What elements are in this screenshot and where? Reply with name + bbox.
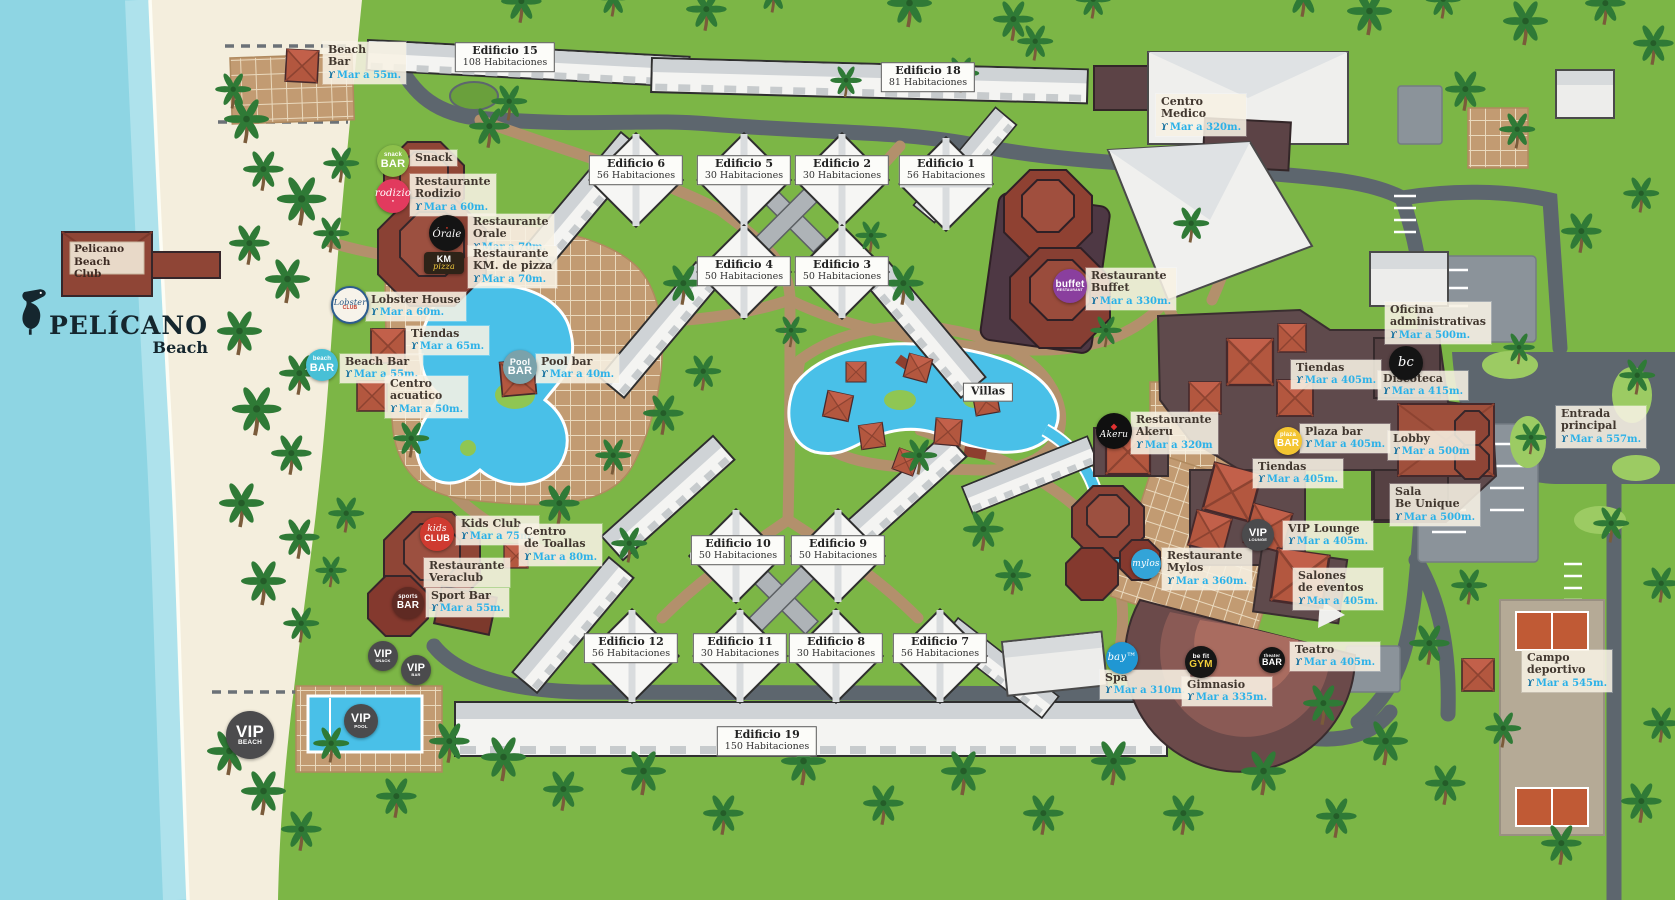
edificio-19-name: Edificio 19 xyxy=(725,729,809,742)
label-restaurante-rodizio[interactable]: Restaurante RodizioϒMar a 60m. xyxy=(410,174,496,216)
edificio-3-rooms: 50 Habitaciones xyxy=(803,272,881,283)
vip-pool-badge-text: VIP xyxy=(351,713,371,724)
label-tiendas-norte[interactable]: TiendasϒMar a 405m. xyxy=(1291,360,1381,389)
vip-lounge-name: VIP Lounge xyxy=(1288,523,1368,535)
label-edificio-12[interactable]: Edificio 1256 Habitaciones xyxy=(584,633,678,663)
label-snack[interactable]: Snack xyxy=(410,150,457,166)
restaurante-akeru-name: Restaurante Akeru xyxy=(1136,414,1213,439)
edificio-11-name: Edificio 11 xyxy=(701,636,779,649)
tiendas-sur-distance-line: ϒMar a 405m. xyxy=(1258,474,1338,486)
lobby-name: Lobby xyxy=(1393,433,1470,445)
label-edificio-7[interactable]: Edificio 756 Habitaciones xyxy=(893,633,987,663)
edificio-4-name: Edificio 4 xyxy=(705,259,783,272)
label-edificio-19[interactable]: Edificio 19150 Habitaciones xyxy=(717,726,817,756)
centro-medico-distance-line: ϒMar a 320m. xyxy=(1161,122,1241,134)
edificio-19-rooms: 150 Habitaciones xyxy=(725,742,809,753)
edificio-2-rooms: 30 Habitaciones xyxy=(803,171,881,182)
plaza-bar-badge-text: BAR xyxy=(1277,439,1299,449)
label-discoteca[interactable]: DiscotecaϒMar a 415m. xyxy=(1378,371,1468,400)
edificio-5-rooms: 30 Habitaciones xyxy=(705,171,783,182)
sea-distance-icon: ϒ xyxy=(1305,440,1312,450)
edificio-9-rooms: 50 Habitaciones xyxy=(799,551,877,562)
centro-acuatico-distance-line: ϒMar a 50m. xyxy=(390,404,463,416)
orale-badge-text: Órale xyxy=(432,230,461,240)
label-edificio-3[interactable]: Edificio 350 Habitaciones xyxy=(795,256,889,286)
snack-bar-badge-text: BAR xyxy=(381,159,405,169)
restaurante-rodizio-name: Restaurante Rodizio xyxy=(415,176,491,201)
edificio-6-rooms: 56 Habitaciones xyxy=(597,171,675,182)
label-entrada-principal[interactable]: Entrada principalϒMar a 557m. xyxy=(1556,406,1646,448)
centro-de-toallas-distance: Mar a 80m. xyxy=(533,552,597,563)
label-teatro[interactable]: TeatroϒMar a 405m. xyxy=(1290,642,1380,671)
vip-lounge-distance: Mar a 405m. xyxy=(1297,536,1368,547)
tiendas-norte-distance-line: ϒMar a 405m. xyxy=(1296,375,1376,387)
sports-bar-badge-text: BAR xyxy=(397,601,419,611)
akeru-badge-text: Akeru xyxy=(1100,431,1128,440)
centro-acuatico-name: Centro acuatico xyxy=(390,378,463,403)
orale-badge[interactable]: ●Órale xyxy=(429,215,465,251)
plaza-bar-distance-line: ϒMar a 405m. xyxy=(1305,439,1385,451)
sea-distance-icon: ϒ xyxy=(431,604,438,614)
vip-beach-badge-text: BEACH xyxy=(238,740,262,746)
snack-name: Snack xyxy=(415,152,452,164)
tiendas-sur-name: Tiendas xyxy=(1258,461,1338,473)
beach-club-sign-text: Pelicano Beach Club xyxy=(74,243,140,281)
salones-de-eventos-distance: Mar a 405m. xyxy=(1307,596,1378,607)
restaurante-km-pizza-distance-line: ϒMar a 70m. xyxy=(473,274,552,286)
sea-distance-icon: ϒ xyxy=(1187,693,1194,703)
edificio-18-name: Edificio 18 xyxy=(889,65,967,78)
spa-name: Spa xyxy=(1105,672,1185,684)
gimnasio-distance: Mar a 335m. xyxy=(1196,692,1267,703)
sala-be-unique-name: Sala Be Unique xyxy=(1395,486,1475,511)
spa-distance: Mar a 310m. xyxy=(1114,685,1185,696)
label-plaza-bar[interactable]: Plaza barϒMar a 405m. xyxy=(1300,424,1390,453)
pelican-icon xyxy=(18,286,49,338)
label-lobby[interactable]: LobbyϒMar a 500m xyxy=(1388,431,1475,460)
tiendas-oeste-distance-line: ϒMar a 65m. xyxy=(411,341,484,353)
tiendas-sur-distance: Mar a 405m. xyxy=(1267,474,1338,485)
label-restaurante-akeru[interactable]: Restaurante AkeruϒMar a 320m xyxy=(1131,412,1218,454)
pool-bar-badge[interactable]: PoolBAR xyxy=(503,350,537,384)
restaurante-buffet-distance-line: ϒMar a 330m. xyxy=(1091,296,1171,308)
label-restaurante-mylos[interactable]: Restaurante MylosϒMar a 360m. xyxy=(1162,548,1252,590)
sport-bar-distance: Mar a 55m. xyxy=(440,603,504,614)
centro-de-toallas-name: Centro de Toallas xyxy=(524,526,597,551)
sea-distance-icon: ϒ xyxy=(1161,123,1168,133)
lobster-house-distance-line: ϒMar a 60m. xyxy=(371,307,461,319)
sea-distance-icon: ϒ xyxy=(1527,679,1534,689)
sea-distance-icon: ϒ xyxy=(1136,441,1143,451)
restaurante-orale-name: Restaurante Orale xyxy=(473,216,549,241)
edificio-18-rooms: 81 Habitaciones xyxy=(889,78,967,89)
oficina-administrativas-distance-line: ϒMar a 500m. xyxy=(1390,330,1486,342)
edificio-15-rooms: 108 Habitaciones xyxy=(463,58,547,69)
edificio-9-name: Edificio 9 xyxy=(799,538,877,551)
sea-distance-icon: ϒ xyxy=(328,71,335,81)
km-pizza-badge[interactable]: KMpizza xyxy=(424,252,464,274)
sport-bar-name: Sport Bar xyxy=(431,590,504,602)
label-tiendas-oeste[interactable]: TiendasϒMar a 65m. xyxy=(406,326,489,355)
restaurante-km-pizza-name: Restaurante KM. de pizza xyxy=(473,248,552,273)
beach-bar-badge[interactable]: beachBAR xyxy=(306,349,338,381)
edificio-10-name: Edificio 10 xyxy=(699,538,777,551)
vip-snack-badge[interactable]: VIPSNACK xyxy=(368,641,398,671)
vip-beach-badge-text: VIP xyxy=(236,724,264,740)
entrada-principal-distance: Mar a 557m. xyxy=(1570,434,1641,445)
restaurante-rodizio-distance: Mar a 60m. xyxy=(424,202,488,213)
edificio-3-name: Edificio 3 xyxy=(803,259,881,272)
edificio-2-name: Edificio 2 xyxy=(803,158,881,171)
campo-deportivo-distance: Mar a 545m. xyxy=(1536,678,1607,689)
edificio-4-rooms: 50 Habitaciones xyxy=(705,272,783,283)
label-sala-be-unique[interactable]: Sala Be UniqueϒMar a 500m. xyxy=(1390,484,1480,526)
label-edificio-8[interactable]: Edificio 830 Habitaciones xyxy=(789,633,883,663)
label-edificio-10[interactable]: Edificio 1050 Habitaciones xyxy=(691,535,785,565)
sport-bar-distance-line: ϒMar a 55m. xyxy=(431,603,504,615)
bc-badge-text: bc xyxy=(1398,357,1414,369)
logo-subtitle: Beach xyxy=(86,340,208,356)
restaurante-rodizio-distance-line: ϒMar a 60m. xyxy=(415,202,491,214)
plaza-bar-name: Plaza bar xyxy=(1305,426,1385,438)
restaurante-mylos-distance-line: ϒMar a 360m. xyxy=(1167,576,1247,588)
label-edificio-18[interactable]: Edificio 1881 Habitaciones xyxy=(881,62,975,92)
label-villas[interactable]: Villas xyxy=(963,383,1013,402)
label-centro-medico[interactable]: Centro MedicoϒMar a 320m. xyxy=(1156,94,1246,136)
label-edificio-1[interactable]: Edificio 156 Habitaciones xyxy=(899,155,993,185)
beach-bar-north-distance-line: ϒMar a 55m. xyxy=(328,70,401,82)
label-restaurante-buffet[interactable]: Restaurante BuffetϒMar a 330m. xyxy=(1086,268,1176,310)
lobby-distance: Mar a 500m xyxy=(1402,446,1470,457)
theater-bar-badge[interactable]: theaterBAR xyxy=(1259,647,1285,673)
sea-distance-icon: ϒ xyxy=(1258,475,1265,485)
edificio-15-name: Edificio 15 xyxy=(463,45,547,58)
resort-map: Edificio 15108 HabitacionesEdificio 1881… xyxy=(0,0,1675,900)
restaurante-mylos-name: Restaurante Mylos xyxy=(1167,550,1247,575)
label-edificio-6[interactable]: Edificio 656 Habitaciones xyxy=(589,155,683,185)
gimnasio-distance-line: ϒMar a 335m. xyxy=(1187,692,1267,704)
label-edificio-2[interactable]: Edificio 230 Habitaciones xyxy=(795,155,889,185)
sea-distance-icon: ϒ xyxy=(1561,435,1568,445)
beach-bar-sur-name: Beach Bar xyxy=(345,356,418,368)
sea-distance-icon: ϒ xyxy=(371,308,378,318)
kids-club-badge[interactable]: kidsCLUB xyxy=(420,517,454,551)
sea-distance-icon: ϒ xyxy=(390,405,397,415)
teatro-distance: Mar a 405m. xyxy=(1304,657,1375,668)
restaurante-mylos-distance: Mar a 360m. xyxy=(1176,576,1247,587)
sea-distance-icon: ϒ xyxy=(1091,297,1098,307)
sea-distance-icon: ϒ xyxy=(1298,597,1305,607)
edificio-10-rooms: 50 Habitaciones xyxy=(699,551,777,562)
sea-distance-icon: ϒ xyxy=(1288,537,1295,547)
edificio-12-rooms: 56 Habitaciones xyxy=(592,649,670,660)
sea-distance-icon: ϒ xyxy=(411,342,418,352)
edificio-1-name: Edificio 1 xyxy=(907,158,985,171)
tiendas-oeste-distance: Mar a 65m. xyxy=(420,341,484,352)
edificio-8-name: Edificio 8 xyxy=(797,636,875,649)
beach-bar-north-name: Beach Bar xyxy=(328,44,401,69)
sea-distance-icon: ϒ xyxy=(524,553,531,563)
label-tiendas-sur[interactable]: TiendasϒMar a 405m. xyxy=(1253,459,1343,488)
entrada-principal-distance-line: ϒMar a 557m. xyxy=(1561,434,1641,446)
lobster-house-name: Lobster House xyxy=(371,294,461,306)
sala-be-unique-distance-line: ϒMar a 500m. xyxy=(1395,512,1475,524)
rodizio-badge-text: ● xyxy=(392,199,395,203)
pool-bar-name: Pool bar xyxy=(541,356,614,368)
lobster-club-badge-text: CLUB xyxy=(343,306,358,311)
bay-badge[interactable]: bay™ xyxy=(1106,642,1138,674)
edificio-5-name: Edificio 5 xyxy=(705,158,783,171)
discoteca-distance-line: ϒMar a 415m. xyxy=(1383,386,1463,398)
tiendas-norte-name: Tiendas xyxy=(1296,362,1376,374)
centro-medico-name: Centro Medico xyxy=(1161,96,1241,121)
villas-name: Villas xyxy=(971,386,1005,399)
edificio-6-name: Edificio 6 xyxy=(597,158,675,171)
sea-distance-icon: ϒ xyxy=(1383,387,1390,397)
label-edificio-9[interactable]: Edificio 950 Habitaciones xyxy=(791,535,885,565)
label-spa[interactable]: SpaϒMar a 310m. xyxy=(1100,670,1190,699)
sea-distance-icon: ϒ xyxy=(473,275,480,285)
vip-bar-badge-text: BAR xyxy=(411,673,420,677)
tiendas-norte-distance: Mar a 405m. xyxy=(1305,375,1376,386)
vip-pool-badge-text: POOL xyxy=(354,725,368,729)
pool-bar-badge-text: BAR xyxy=(508,366,532,376)
label-beach-bar-north[interactable]: Beach BarϒMar a 55m. xyxy=(323,42,406,84)
label-centro-acuatico[interactable]: Centro acuaticoϒMar a 50m. xyxy=(385,376,468,418)
label-pool-bar[interactable]: Pool barϒMar a 40m. xyxy=(536,354,619,383)
label-vip-lounge[interactable]: VIP LoungeϒMar a 405m. xyxy=(1283,521,1373,550)
discoteca-distance: Mar a 415m. xyxy=(1392,386,1463,397)
pool-bar-distance-line: ϒMar a 40m. xyxy=(541,369,614,381)
vip-lounge-badge-text: LOUNGE xyxy=(1249,538,1267,542)
spa-distance-line: ϒMar a 310m. xyxy=(1105,685,1185,697)
mylos-badge-text: mylos xyxy=(1132,560,1160,569)
vip-bar-badge[interactable]: VIPBAR xyxy=(401,655,431,685)
label-sport-bar[interactable]: Sport BarϒMar a 55m. xyxy=(426,588,509,617)
kids-club-badge-text: CLUB xyxy=(424,534,450,543)
restaurante-buffet-name: Restaurante Buffet xyxy=(1091,270,1171,295)
lobby-distance-line: ϒMar a 500m xyxy=(1393,446,1470,458)
sea-distance-icon: ϒ xyxy=(1390,331,1397,341)
centro-acuatico-distance: Mar a 50m. xyxy=(399,404,463,415)
lobster-house-distance: Mar a 60m. xyxy=(380,307,444,318)
buffet-restaurant-badge-text: RESTAURANT xyxy=(1057,289,1083,292)
salones-de-eventos-name: Salones de eventos xyxy=(1298,570,1378,595)
edificio-8-rooms: 30 Habitaciones xyxy=(797,649,875,660)
label-edificio-11[interactable]: Edificio 1130 Habitaciones xyxy=(693,633,787,663)
sala-be-unique-distance: Mar a 500m. xyxy=(1404,512,1475,523)
rodizio-badge[interactable]: rodizio● xyxy=(376,179,410,213)
plaza-bar-badge[interactable]: plazaBAR xyxy=(1274,427,1302,455)
label-salones-de-eventos[interactable]: Salones de eventosϒMar a 405m. xyxy=(1293,568,1383,610)
mylos-badge[interactable]: mylos xyxy=(1131,549,1161,579)
label-edificio-5[interactable]: Edificio 530 Habitaciones xyxy=(697,155,791,185)
plaza-bar-distance: Mar a 405m. xyxy=(1314,439,1385,450)
bc-badge[interactable]: bc xyxy=(1389,346,1423,380)
label-edificio-4[interactable]: Edificio 450 Habitaciones xyxy=(697,256,791,286)
sea-distance-icon: ϒ xyxy=(1393,447,1400,457)
teatro-name: Teatro xyxy=(1295,644,1375,656)
buffet-restaurant-badge[interactable]: buffetRESTAURANT xyxy=(1053,269,1087,303)
beach-bar-badge-text: BAR xyxy=(310,363,334,373)
sea-distance-icon: ϒ xyxy=(461,532,468,542)
vip-lounge-distance-line: ϒMar a 405m. xyxy=(1288,536,1368,548)
beach-bar-north-distance: Mar a 55m. xyxy=(337,70,401,81)
campo-deportivo-name: Campo deportivo xyxy=(1527,652,1607,677)
restaurante-akeru-distance: Mar a 320m xyxy=(1145,440,1213,451)
sea-distance-icon: ϒ xyxy=(541,370,548,380)
befit-gym-badge-text: GYM xyxy=(1189,660,1212,670)
edificio-7-name: Edificio 7 xyxy=(901,636,979,649)
sea-distance-icon: ϒ xyxy=(1105,686,1112,696)
resort-logo: PELÍCANO Beach xyxy=(18,286,208,356)
vip-snack-badge-text: SNACK xyxy=(375,659,390,663)
sea-distance-icon: ϒ xyxy=(1167,577,1174,587)
label-restaurante-veraclub[interactable]: Restaurante Veraclub xyxy=(424,558,510,587)
vip-lounge-badge[interactable]: VIPLOUNGE xyxy=(1242,519,1274,551)
sea-distance-icon: ϒ xyxy=(1295,658,1302,668)
label-oficina-administrativas[interactable]: Oficina administrativasϒMar a 500m. xyxy=(1385,302,1491,344)
vip-beach-badge[interactable]: VIPBEACH xyxy=(226,711,274,759)
gimnasio-name: Gimnasio xyxy=(1187,679,1267,691)
logo-name: PELÍCANO xyxy=(49,313,208,338)
oficina-administrativas-name: Oficina administrativas xyxy=(1390,304,1486,329)
akeru-badge[interactable]: ◆Akeru xyxy=(1096,413,1132,449)
edificio-1-rooms: 56 Habitaciones xyxy=(907,171,985,182)
restaurante-buffet-distance: Mar a 330m. xyxy=(1100,296,1171,307)
label-centro-de-toallas[interactable]: Centro de ToallasϒMar a 80m. xyxy=(519,524,602,566)
label-restaurante-km-pizza[interactable]: Restaurante KM. de pizzaϒMar a 70m. xyxy=(468,246,557,288)
vip-pool-badge[interactable]: VIPPOOL xyxy=(344,704,378,738)
edificio-11-rooms: 30 Habitaciones xyxy=(701,649,779,660)
restaurante-veraclub-name: Restaurante Veraclub xyxy=(429,560,505,585)
label-campo-deportivo[interactable]: Campo deportivoϒMar a 545m. xyxy=(1522,650,1612,692)
edificio-12-name: Edificio 12 xyxy=(592,636,670,649)
centro-medico-distance: Mar a 320m. xyxy=(1170,122,1241,133)
lobster-club-badge[interactable]: LobsterCLUB xyxy=(331,286,369,324)
theater-bar-badge-text: BAR xyxy=(1262,658,1282,667)
sea-distance-icon: ϒ xyxy=(345,370,352,380)
pool-bar-distance: Mar a 40m. xyxy=(550,369,614,380)
label-gimnasio[interactable]: GimnasioϒMar a 335m. xyxy=(1182,677,1272,706)
edificio-7-rooms: 56 Habitaciones xyxy=(901,649,979,660)
befit-gym-badge[interactable]: be fitGYM xyxy=(1185,646,1217,678)
salones-de-eventos-distance-line: ϒMar a 405m. xyxy=(1298,596,1378,608)
oficina-administrativas-distance: Mar a 500m. xyxy=(1399,330,1470,341)
label-edificio-15[interactable]: Edificio 15108 Habitaciones xyxy=(455,42,555,72)
snack-bar-badge[interactable]: snackBAR xyxy=(377,145,409,177)
sea-distance-icon: ϒ xyxy=(415,203,422,213)
sports-bar-badge[interactable]: sportsBAR xyxy=(392,587,424,619)
label-lobster-house[interactable]: Lobster HouseϒMar a 60m. xyxy=(366,292,466,321)
campo-deportivo-distance-line: ϒMar a 545m. xyxy=(1527,678,1607,690)
map-label-layer: Edificio 15108 HabitacionesEdificio 1881… xyxy=(0,0,1675,900)
centro-de-toallas-distance-line: ϒMar a 80m. xyxy=(524,552,597,564)
restaurante-akeru-distance-line: ϒMar a 320m xyxy=(1136,440,1213,452)
sea-distance-icon: ϒ xyxy=(1395,513,1402,523)
bay-badge-text: bay™ xyxy=(1108,653,1137,663)
km-pizza-badge-text: pizza xyxy=(433,263,455,271)
tiendas-oeste-name: Tiendas xyxy=(411,328,484,340)
teatro-distance-line: ϒMar a 405m. xyxy=(1295,657,1375,669)
restaurante-km-pizza-distance: Mar a 70m. xyxy=(482,274,546,285)
entrada-principal-name: Entrada principal xyxy=(1561,408,1641,433)
sea-distance-icon: ϒ xyxy=(1296,376,1303,386)
